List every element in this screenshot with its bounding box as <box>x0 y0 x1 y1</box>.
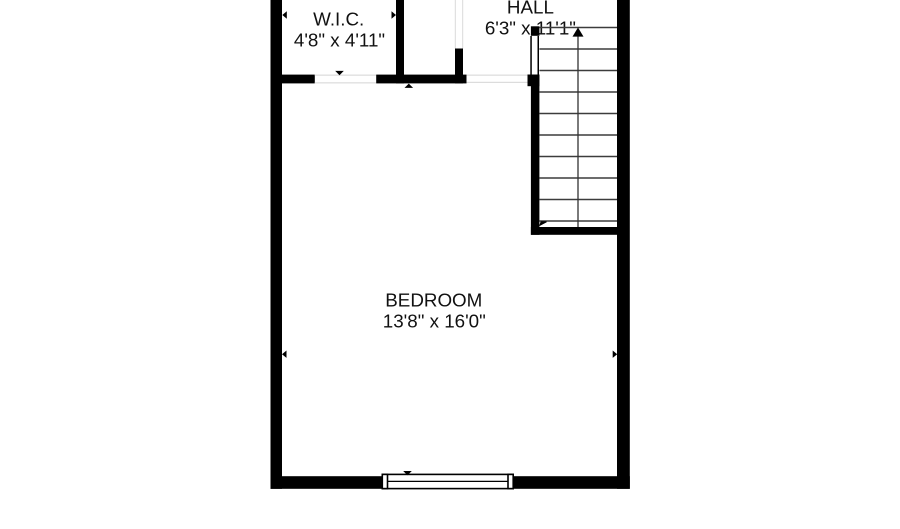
svg-text:BEDROOM: BEDROOM <box>385 290 482 311</box>
svg-text:4'8" x 4'11": 4'8" x 4'11" <box>294 30 385 51</box>
svg-text:HALL: HALL <box>507 0 554 18</box>
svg-text:W.I.C.: W.I.C. <box>313 8 364 29</box>
svg-text:13'8" x 16'0": 13'8" x 16'0" <box>383 311 486 332</box>
